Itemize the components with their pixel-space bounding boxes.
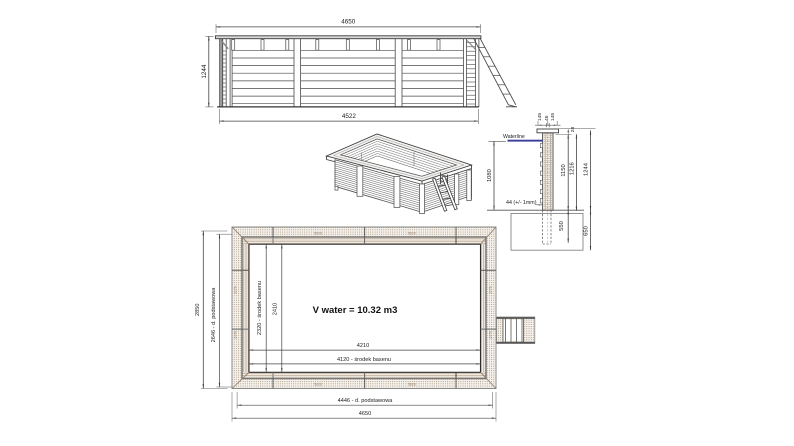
- svg-text:1150: 1150: [561, 164, 567, 176]
- svg-text:4446 - d. podstawowa: 4446 - d. podstawowa: [338, 398, 394, 404]
- svg-text:2850: 2850: [195, 304, 201, 316]
- svg-text:1244: 1244: [201, 64, 208, 79]
- svg-text:4650: 4650: [341, 19, 356, 26]
- svg-text:2646 - d. podstawowa: 2646 - d. podstawowa: [211, 287, 217, 343]
- svg-text:Waterline: Waterline: [503, 134, 525, 140]
- svg-text:2076: 2076: [234, 331, 238, 339]
- svg-text:5020: 5020: [314, 231, 322, 235]
- svg-text:145: 145: [550, 113, 556, 121]
- svg-text:45: 45: [544, 115, 550, 121]
- svg-text:5020: 5020: [408, 231, 416, 235]
- svg-text:44 (+/- 1mm): 44 (+/- 1mm): [506, 200, 537, 206]
- svg-text:650: 650: [584, 226, 590, 236]
- svg-text:2076: 2076: [489, 286, 493, 294]
- svg-text:4522: 4522: [342, 113, 357, 120]
- svg-text:5020: 5020: [408, 383, 416, 387]
- svg-text:4650: 4650: [359, 411, 371, 417]
- svg-text:4120 - środek basenu: 4120 - środek basenu: [337, 357, 391, 363]
- svg-text:4210: 4210: [357, 343, 369, 349]
- svg-text:V water = 10.32 m3: V water = 10.32 m3: [313, 305, 398, 316]
- svg-text:145: 145: [537, 113, 543, 121]
- svg-text:2076: 2076: [234, 286, 238, 294]
- svg-text:1080: 1080: [487, 169, 493, 182]
- svg-text:2410: 2410: [272, 303, 278, 315]
- svg-text:1216: 1216: [569, 162, 575, 175]
- svg-text:28: 28: [570, 127, 576, 133]
- svg-text:5020: 5020: [314, 383, 322, 387]
- svg-text:2320 - środek basenu: 2320 - środek basenu: [257, 281, 263, 335]
- svg-text:2076: 2076: [489, 331, 493, 339]
- svg-text:550: 550: [559, 221, 565, 231]
- svg-text:1244: 1244: [584, 162, 590, 176]
